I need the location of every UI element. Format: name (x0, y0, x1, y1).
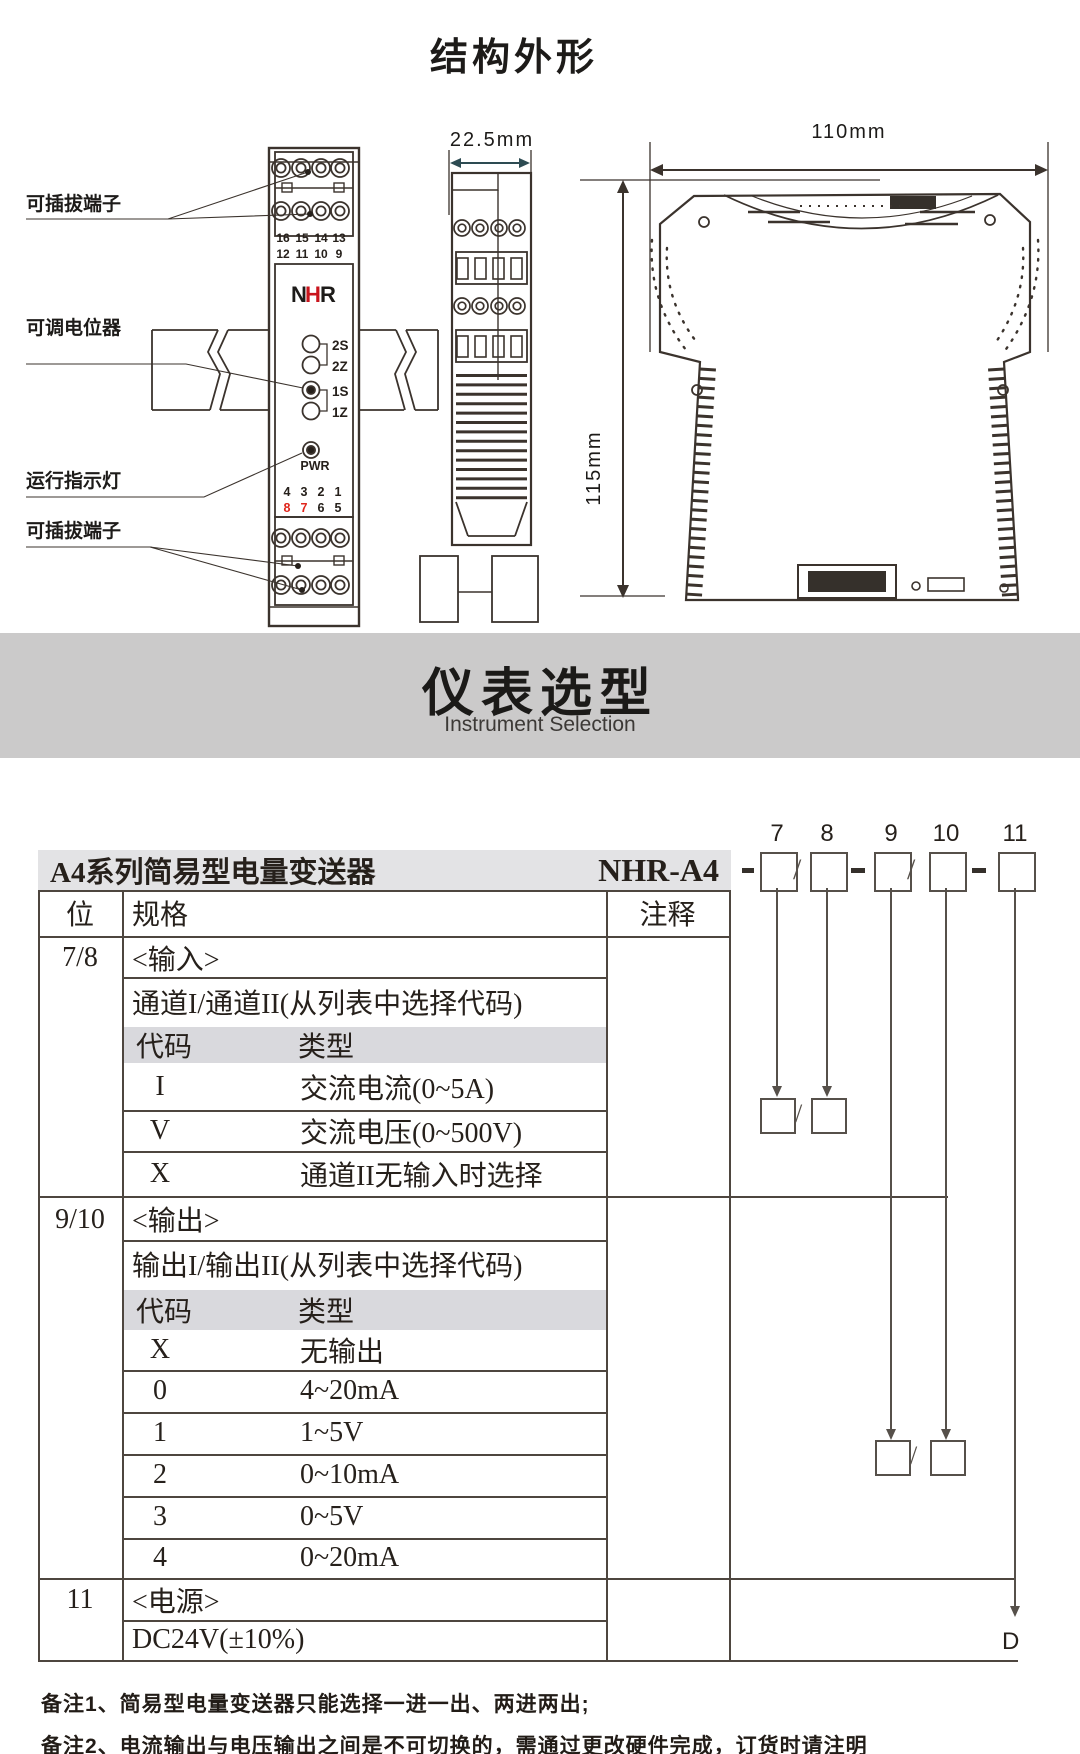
housing-side-view: 110mm (650, 121, 1048, 600)
type-value: 0~20mA (300, 1538, 600, 1578)
arrow-icon (1010, 1606, 1020, 1617)
section-pos: 7/8 (38, 938, 122, 978)
dim-depth-arrow (650, 164, 1048, 176)
type-value: 无输出 (300, 1330, 600, 1370)
annotation-line-10 (945, 888, 947, 1429)
dim-width-label: 22.5mm (450, 129, 534, 151)
dim-height-label: 115mm (583, 430, 605, 505)
position-number-8: 8 (802, 820, 852, 848)
model-code-box-10 (929, 852, 967, 892)
section-title: <电源> (132, 1580, 532, 1620)
svg-text:H: H (305, 282, 321, 307)
value-slash-1: / (795, 1099, 802, 1129)
model-code-box-11 (998, 852, 1036, 892)
arrow-icon (772, 1086, 782, 1097)
callout-plug-top: 可插拔端子 (26, 192, 121, 215)
section-banner: 仪表选型 Instrument Selection (0, 633, 1080, 758)
callout-run-indicator: 运行指示灯 (26, 469, 121, 492)
value-box-10 (930, 1440, 966, 1476)
note-1: 备注1、简易型电量变送器只能选择一进一出、两进两出; (41, 1688, 1051, 1718)
value-slash-2: / (910, 1441, 917, 1471)
type-label: 类型 (298, 1027, 498, 1063)
note-2: 备注2、电流输出与电压输出之间是不可切换的，需通过更改硬件完成，订货时请注明 (41, 1730, 1051, 1754)
table-line (606, 890, 608, 1662)
svg-text:4: 4 (284, 485, 291, 499)
callout-plug-bottom: 可插拔端子 (26, 519, 121, 542)
svg-text:16: 16 (276, 231, 290, 245)
svg-text:13: 13 (332, 231, 346, 245)
pwr-label: PWR (300, 459, 329, 473)
datasheet-page: 结构外形 (0, 0, 1080, 1754)
svg-text:2: 2 (318, 485, 325, 499)
code-value: X (130, 1151, 190, 1196)
svg-text:6: 6 (318, 501, 325, 515)
model-dash-3 (972, 868, 986, 873)
position-number-11: 11 (990, 820, 1040, 848)
svg-text:9: 9 (336, 247, 343, 261)
model-code-box-8 (810, 852, 848, 892)
section-pos: 11 (38, 1580, 122, 1620)
code-value: I (130, 1063, 190, 1110)
dim-width-arrow (450, 158, 530, 168)
col-header-note: 注释 (606, 890, 729, 936)
type-value: 1~5V (300, 1412, 600, 1454)
annotation-line-11 (1014, 888, 1016, 1606)
structure-drawing: 16 15 14 13 12 11 10 9 N H R (0, 0, 1080, 640)
section-desc: DC24V(±10%) (132, 1620, 602, 1660)
svg-text:2S: 2S (332, 338, 349, 353)
arrow-icon (941, 1429, 951, 1440)
svg-text:14: 14 (314, 231, 328, 245)
table-bottom-line (38, 1660, 1018, 1662)
position-number-9: 9 (866, 820, 916, 848)
table-line (38, 890, 40, 1662)
code-label: 代码 (136, 1027, 256, 1063)
svg-text:3: 3 (301, 485, 308, 499)
svg-text:1Z: 1Z (332, 405, 348, 420)
annotation-line-9 (890, 888, 892, 1429)
top-terminal-screws (272, 159, 349, 220)
callout-potentiometer: 可调电位器 (26, 316, 122, 339)
svg-text:1S: 1S (332, 384, 349, 399)
section-desc: 通道I/通道II(从列表中选择代码) (132, 977, 602, 1027)
type-value: 0~5V (300, 1496, 600, 1538)
nhr-logo: N H R (291, 282, 336, 307)
code-value: 1 (130, 1412, 190, 1454)
svg-text:5: 5 (335, 501, 342, 515)
series-title-band: A4系列简易型电量变送器 NHR-A4 (38, 850, 731, 890)
potentiometers (303, 336, 328, 420)
value-box-8 (811, 1098, 847, 1134)
arrow-icon (822, 1086, 832, 1097)
annotation-line-7 (776, 888, 778, 1086)
code-label: 代码 (136, 1290, 256, 1330)
banner-subtitle: Instrument Selection (0, 713, 1080, 737)
svg-text:7: 7 (301, 501, 308, 515)
annotation-line-8 (826, 888, 828, 1086)
position-number-7: 7 (752, 820, 802, 848)
model-dash-2 (851, 868, 865, 873)
pot-labels: 2S 2Z 1S 1Z (332, 338, 349, 420)
svg-text:12: 12 (276, 247, 290, 261)
svg-text:1: 1 (335, 485, 342, 499)
position-number-10: 10 (921, 820, 971, 848)
type-value: 交流电压(0~500V) (300, 1110, 600, 1151)
type-label: 类型 (298, 1290, 498, 1330)
svg-text:R: R (320, 282, 336, 307)
din-rail (152, 330, 438, 410)
code-value: 4 (130, 1538, 190, 1578)
code-value: 0 (130, 1370, 190, 1412)
code-value: 2 (130, 1454, 190, 1496)
arrow-icon (886, 1429, 896, 1440)
model-slash-2: / (907, 853, 915, 887)
value-box-9 (875, 1440, 911, 1476)
code-value: X (130, 1330, 190, 1370)
model-slash-1: / (793, 853, 801, 887)
code-value: V (130, 1110, 190, 1151)
col-header-spec: 规格 (132, 890, 432, 936)
front-view: 16 15 14 13 12 11 10 9 N H R (269, 148, 359, 626)
model-prefix: NHR-A4 (598, 852, 731, 889)
table-line (729, 890, 731, 1662)
type-value: 通道II无输入时选择 (300, 1151, 600, 1196)
model-dash-1 (742, 868, 754, 873)
table-line (122, 890, 124, 1662)
section-desc: 输出I/输出II(从列表中选择代码) (132, 1240, 602, 1288)
series-title: A4系列简易型电量变送器 (38, 849, 375, 891)
value-box-7 (760, 1098, 796, 1134)
svg-text:8: 8 (284, 501, 291, 515)
type-value: 交流电流(0~5A) (300, 1063, 600, 1110)
power-code-label: D (1002, 1628, 1019, 1656)
svg-text:11: 11 (296, 247, 309, 261)
type-value: 4~20mA (300, 1370, 600, 1412)
mid-terminal-numbers: 4 3 2 1 8 7 6 5 (284, 485, 342, 515)
svg-text:2Z: 2Z (332, 359, 348, 374)
dim-height: 115mm (580, 180, 880, 598)
section-pos: 9/10 (38, 1198, 122, 1242)
code-value: 3 (130, 1496, 190, 1538)
svg-text:15: 15 (295, 231, 309, 245)
dim-depth-label: 110mm (811, 121, 886, 143)
section-title: <输入> (132, 938, 532, 977)
pwr-led: PWR (300, 442, 329, 473)
svg-text:10: 10 (314, 247, 328, 261)
type-value: 0~10mA (300, 1454, 600, 1496)
section-title: <输出> (132, 1198, 532, 1240)
col-header-pos: 位 (38, 890, 122, 936)
